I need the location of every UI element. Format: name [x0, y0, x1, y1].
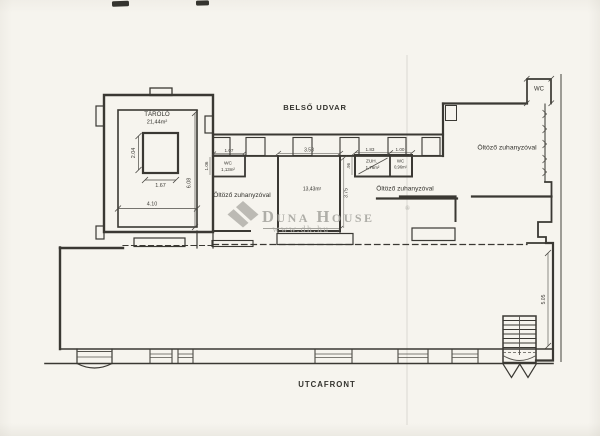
storage-core: [143, 133, 178, 173]
dressing-left-label: Öltöző zuhanyzóval: [213, 191, 271, 199]
dim-wc-mid-width: 1.00: [396, 147, 405, 152]
window: [446, 106, 457, 121]
wc-mid-area: 0,96m²: [394, 165, 407, 170]
wc-small-label: WC: [224, 161, 233, 167]
right-wing: WC Öltöző zuhanyzóval 5.05: [400, 74, 561, 362]
watermark-registered: ®: [405, 205, 410, 212]
right-wall-jog: [527, 182, 552, 243]
room-mid-area: 13,43m²: [303, 187, 322, 193]
dressing-mid-label: Öltöző zuhanyzóval: [376, 185, 434, 193]
dim-wc-small-width: 1.07: [225, 148, 234, 153]
storage-building: TÁROLÓ 21,44m² 2.04 1.67 6.08 4.10: [96, 88, 213, 239]
storage-room-label: TÁROLÓ: [144, 111, 170, 118]
scan-mark: [112, 1, 129, 7]
bench: [277, 234, 353, 245]
shower-area: 1,76m²: [366, 165, 380, 170]
dim-storage-height: 6.08: [187, 178, 193, 189]
wc-mid-label: WC: [397, 159, 404, 164]
shower-label: ZUH.: [366, 159, 377, 164]
dim-storage-core-height: 2.04: [131, 148, 137, 159]
dim-room-mid-height: 3.75: [344, 188, 350, 198]
wc-right-label: WC: [534, 87, 545, 93]
dressing-right-label: Öltöző zuhanyzóval: [477, 144, 537, 152]
window: [178, 349, 193, 364]
floorplan-svg: TÁROLÓ 21,44m² 2.04 1.67 6.08 4.10 BELSŐ…: [0, 0, 600, 436]
scan-mark: [196, 0, 209, 5]
bench: [212, 241, 253, 247]
dim-shower-height: .96: [346, 162, 351, 169]
dim-room-mid-width: 3.58: [304, 148, 314, 154]
window: [452, 349, 478, 364]
entry-door: [77, 349, 112, 368]
street-windows: [150, 349, 478, 364]
wc-small-area: 1,13m²: [221, 167, 235, 172]
watermark-brand: Duna House: [262, 207, 375, 226]
dim-storage-core-width: 1.67: [155, 183, 166, 189]
window: [150, 349, 172, 364]
street-hall: [45, 228, 553, 378]
window: [398, 349, 428, 364]
window: [315, 349, 352, 364]
storage-room-area: 21,44m²: [147, 120, 168, 126]
storage-inner-wall: [118, 110, 197, 227]
scanned-floorplan-page: TÁROLÓ 21,44m² 2.04 1.67 6.08 4.10 BELSŐ…: [0, 0, 600, 436]
bench: [412, 228, 455, 241]
watermark-url: www.dh.hu: [272, 225, 329, 235]
stair-arc: [503, 356, 536, 361]
door-swing-triangles: [503, 364, 536, 378]
dim-storage-width: 4.10: [147, 202, 158, 208]
dim-wc-small-height: 1.06: [204, 161, 209, 170]
staircase: [503, 316, 536, 378]
courtyard-label: BELSŐ UDVAR: [283, 103, 347, 112]
street-label: UTCAFRONT: [298, 380, 356, 389]
dim-right-side-height: 5.05: [541, 294, 547, 304]
watermark: Duna House ® www.dh.hu: [228, 201, 411, 235]
duna-house-logo-icon: [228, 201, 259, 228]
dim-shower-width: 1.83: [366, 147, 375, 152]
